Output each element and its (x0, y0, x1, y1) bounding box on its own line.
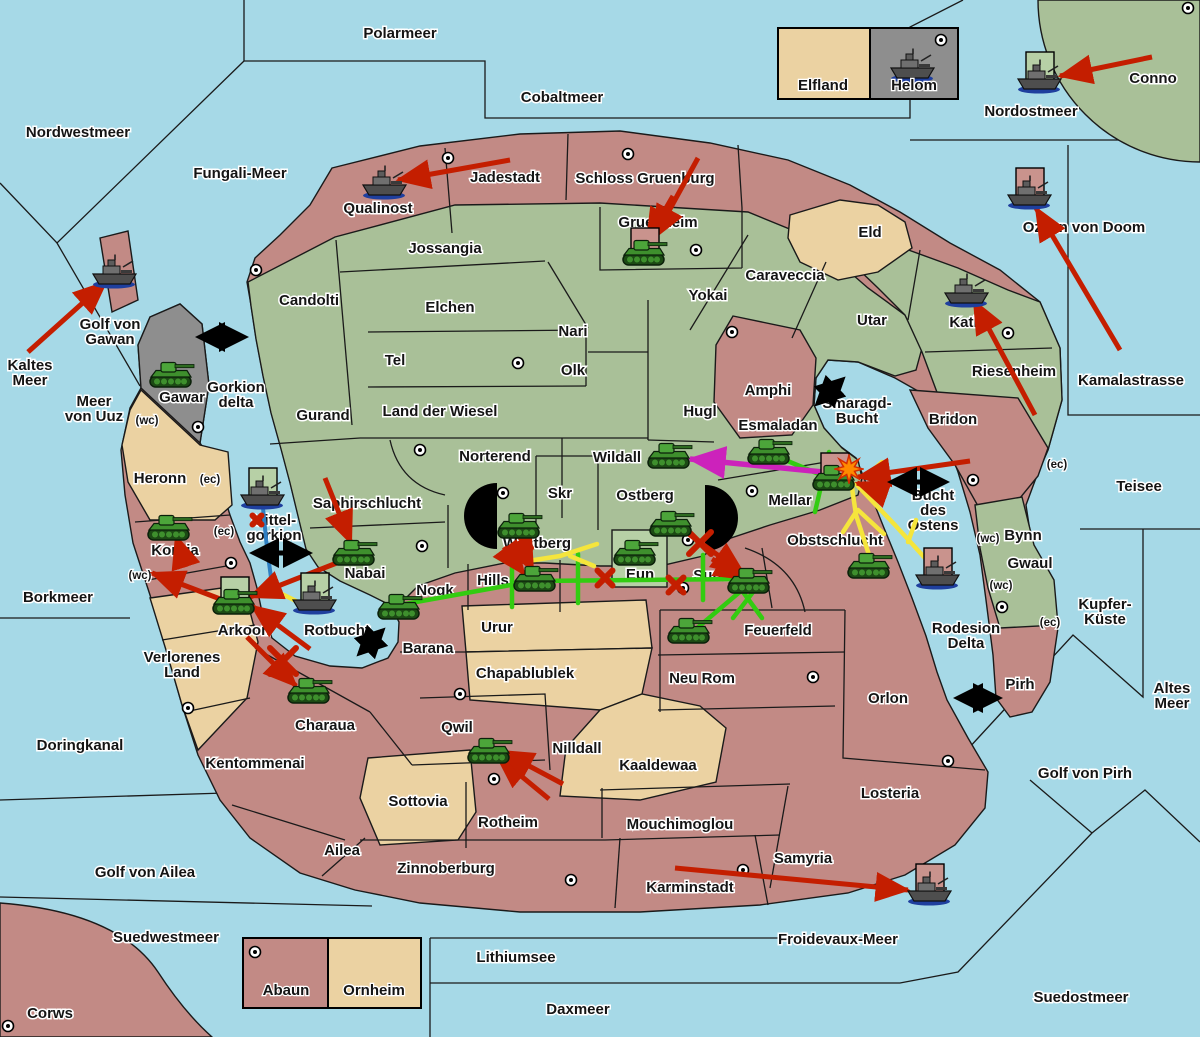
capital-dot (727, 327, 738, 338)
territory-label: Qwil (441, 719, 473, 736)
sea-label: Cobaltmeer (521, 89, 604, 106)
territory-label: Qualinost (343, 200, 412, 217)
capital-dot (513, 358, 524, 369)
territory-label: Eld (858, 224, 881, 241)
territory-label: Jossangia (408, 240, 482, 257)
explosion-icon (835, 455, 863, 483)
territory-label: Ailea (324, 842, 361, 859)
territory-label: Gawar (159, 389, 205, 406)
territory-label: Kath (949, 314, 982, 331)
capital-dot (1183, 3, 1194, 14)
sea-label: Golf vonGawan (80, 316, 141, 348)
capital-dot (808, 672, 819, 683)
territory-label: Caraveccia (745, 267, 825, 284)
sea-label: Golf von Ailea (95, 864, 196, 881)
territory-label: Korbia (151, 542, 199, 559)
territory-label: Gurand (296, 407, 349, 424)
sea-label: Suedwestmeer (113, 929, 219, 946)
territory-label: Samyria (774, 850, 833, 867)
territory-label: Arkoon (218, 622, 271, 639)
territory-label: Feuerfeld (744, 622, 812, 639)
sea-label: KaltesMeer (7, 357, 52, 389)
capital-dot (566, 875, 577, 886)
coast-tag-label: (ec) (200, 474, 221, 486)
territory-label: Chapablublek (476, 665, 575, 682)
sea-label: Nordwestmeer (26, 124, 130, 141)
capital-dot (943, 756, 954, 767)
sea-label: Rotbucht (304, 622, 370, 639)
territory-label: Charaua (295, 717, 356, 734)
territory-label: Mellar (768, 492, 812, 509)
territory-label: Karminstadt (646, 879, 734, 896)
territory-label: Bynn (1004, 527, 1042, 544)
coast-tag-label: (wc) (990, 580, 1013, 592)
coast-tag-label: (wc) (977, 533, 1000, 545)
sea-label: Doringkanal (37, 737, 124, 754)
capital-dot (997, 602, 1008, 613)
territory-label: Tel (385, 352, 406, 369)
legend-label-ornheim: Ornheim (343, 982, 405, 999)
territory-label: Barana (403, 640, 455, 657)
territory-label: Bridon (929, 411, 977, 428)
territory-label: Saphirschlucht (313, 495, 421, 512)
capital-dot (1003, 328, 1014, 339)
territory-label: Heronn (134, 470, 187, 487)
territory-label: Gwaul (1007, 555, 1052, 572)
capital-dot (417, 541, 428, 552)
territory-label: Elchen (425, 299, 474, 316)
capital-dot (691, 245, 702, 256)
coast-tag-label: (wc) (136, 415, 159, 427)
capital-dot (226, 558, 237, 569)
capital-dot (250, 947, 261, 958)
territory-label: Schloss Gruenburg (575, 170, 714, 187)
territory-label: Losteria (861, 785, 920, 802)
territory-label: Orlon (868, 690, 908, 707)
territory-label: Mouchimoglou (627, 816, 734, 833)
capital-dot (747, 486, 758, 497)
territory-label: Olk (561, 362, 586, 379)
move-line (535, 579, 743, 581)
coast-tag-label: (wc) (129, 570, 152, 582)
territory-label: Urur (481, 619, 513, 636)
territory-label: Wildall (593, 449, 641, 466)
capital-dot (193, 422, 204, 433)
capital-dot (251, 265, 262, 276)
coast-tag-label: (ec) (214, 526, 235, 538)
map-canvas[interactable]: Elfland Helom Abaun Ornheim PolarmeerCob… (0, 0, 1200, 1037)
capital-dot (498, 488, 509, 499)
legend-top: Elfland Helom (778, 28, 958, 99)
sea-label: Teisee (1116, 478, 1162, 495)
capital-dot (489, 774, 500, 785)
coast-tag-label: (ec) (1047, 459, 1068, 471)
territory-label: Nilldall (552, 740, 601, 757)
territory-label: Sottovia (388, 793, 448, 810)
territory-label: Zinnoberburg (397, 860, 495, 877)
territory-label: Rotheim (478, 814, 538, 831)
sea-label: Fungali-Meer (193, 165, 287, 182)
capital-dot (623, 149, 634, 160)
sea-label: AltesMeer (1154, 680, 1191, 712)
territory-label: Land der Wiesel (383, 403, 498, 420)
territory-label: Utar (857, 312, 887, 329)
capital-dot (455, 689, 466, 700)
territory-label: Yokai (689, 287, 728, 304)
territory-label: Conno (1129, 70, 1176, 87)
territory-label: Ostberg (616, 487, 674, 504)
capital-dot (183, 703, 194, 714)
sea-label: Nordostmeer (984, 103, 1078, 120)
territory-label: Jadestadt (470, 169, 540, 186)
capital-dot (936, 35, 947, 46)
game-map-stage: Elfland Helom Abaun Ornheim PolarmeerCob… (0, 0, 1200, 1037)
territory-label: Candolti (279, 292, 339, 309)
sea-label: Kamalastrasse (1078, 372, 1184, 389)
legend-label-elfland: Elfland (798, 77, 848, 94)
capital-dot (415, 445, 426, 456)
sea-label: Daxmeer (546, 1001, 610, 1018)
coast-tag-label: (ec) (1040, 617, 1061, 629)
capital-dot (443, 153, 454, 164)
territory-label: Corws (27, 1005, 73, 1022)
territory-label: Nari (558, 323, 587, 340)
sea-label: Borkmeer (23, 589, 93, 606)
territory-label: Kentommenai (205, 755, 304, 772)
sea-label: Suedostmeer (1033, 989, 1128, 1006)
sea-label: Kupfer-Küste (1078, 596, 1131, 628)
legend-label-helom: Helom (891, 77, 937, 94)
legend-label-abaun: Abaun (263, 982, 310, 999)
territory-label: Amphi (745, 382, 792, 399)
sea-label: Golf von Pirh (1038, 765, 1132, 782)
territory-label: Pirh (1005, 676, 1034, 693)
blocked-x-mark (253, 516, 262, 525)
territory-label: Skr (548, 485, 572, 502)
capital-dot (968, 475, 979, 486)
territory-label: Kaaldewaa (619, 757, 697, 774)
territory-label: Hugl (683, 403, 716, 420)
sea-label: Polarmeer (363, 25, 437, 42)
territory-label: Nabai (345, 565, 386, 582)
sea-label: Froidevaux-Meer (778, 931, 898, 948)
territory-label: Neu Rom (669, 670, 735, 687)
territory-label: Norterend (459, 448, 531, 465)
capital-dot (3, 1021, 14, 1032)
sea-label: Lithiumsee (476, 949, 555, 966)
territory-label: Esmaladan (738, 417, 817, 434)
legend-bottom: Abaun Ornheim (243, 938, 421, 1008)
